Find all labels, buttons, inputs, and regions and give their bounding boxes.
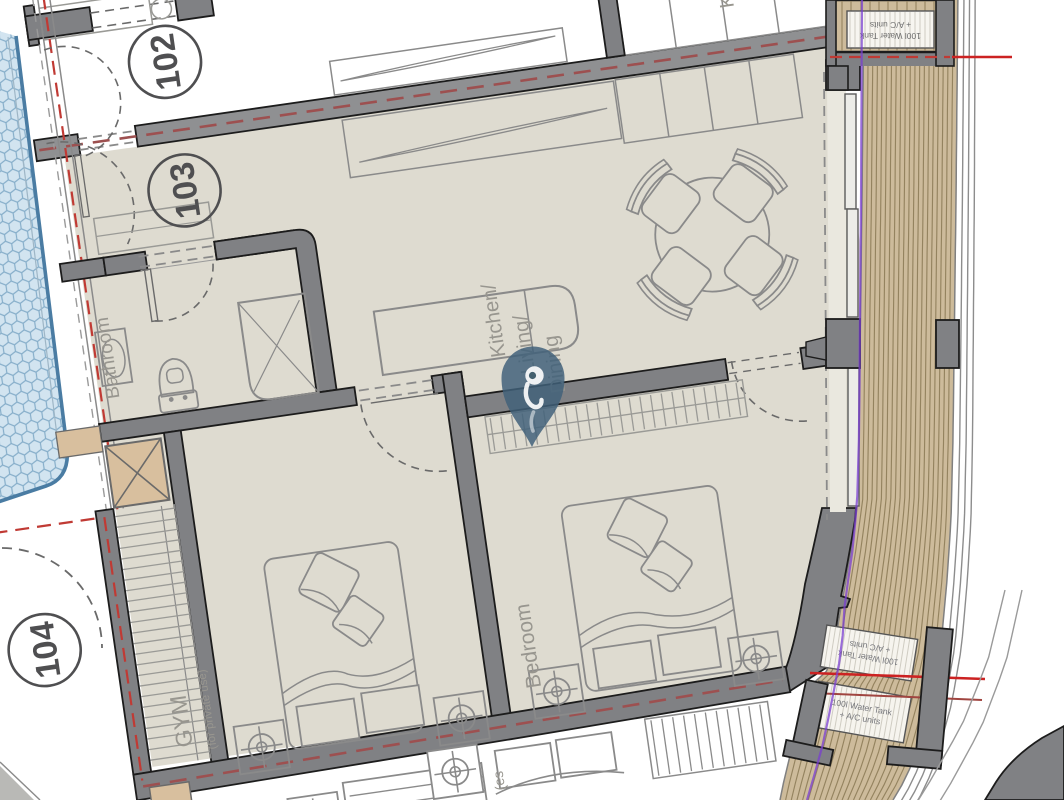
- svg-text:103: 103: [163, 159, 209, 221]
- svg-text:104: 104: [23, 619, 69, 681]
- svg-text:100l Water Tank: 100l Water Tank: [859, 31, 921, 41]
- svg-text:+ A/C units: + A/C units: [870, 20, 911, 30]
- svg-text:(es: (es: [490, 770, 509, 792]
- svg-text:102: 102: [143, 31, 189, 93]
